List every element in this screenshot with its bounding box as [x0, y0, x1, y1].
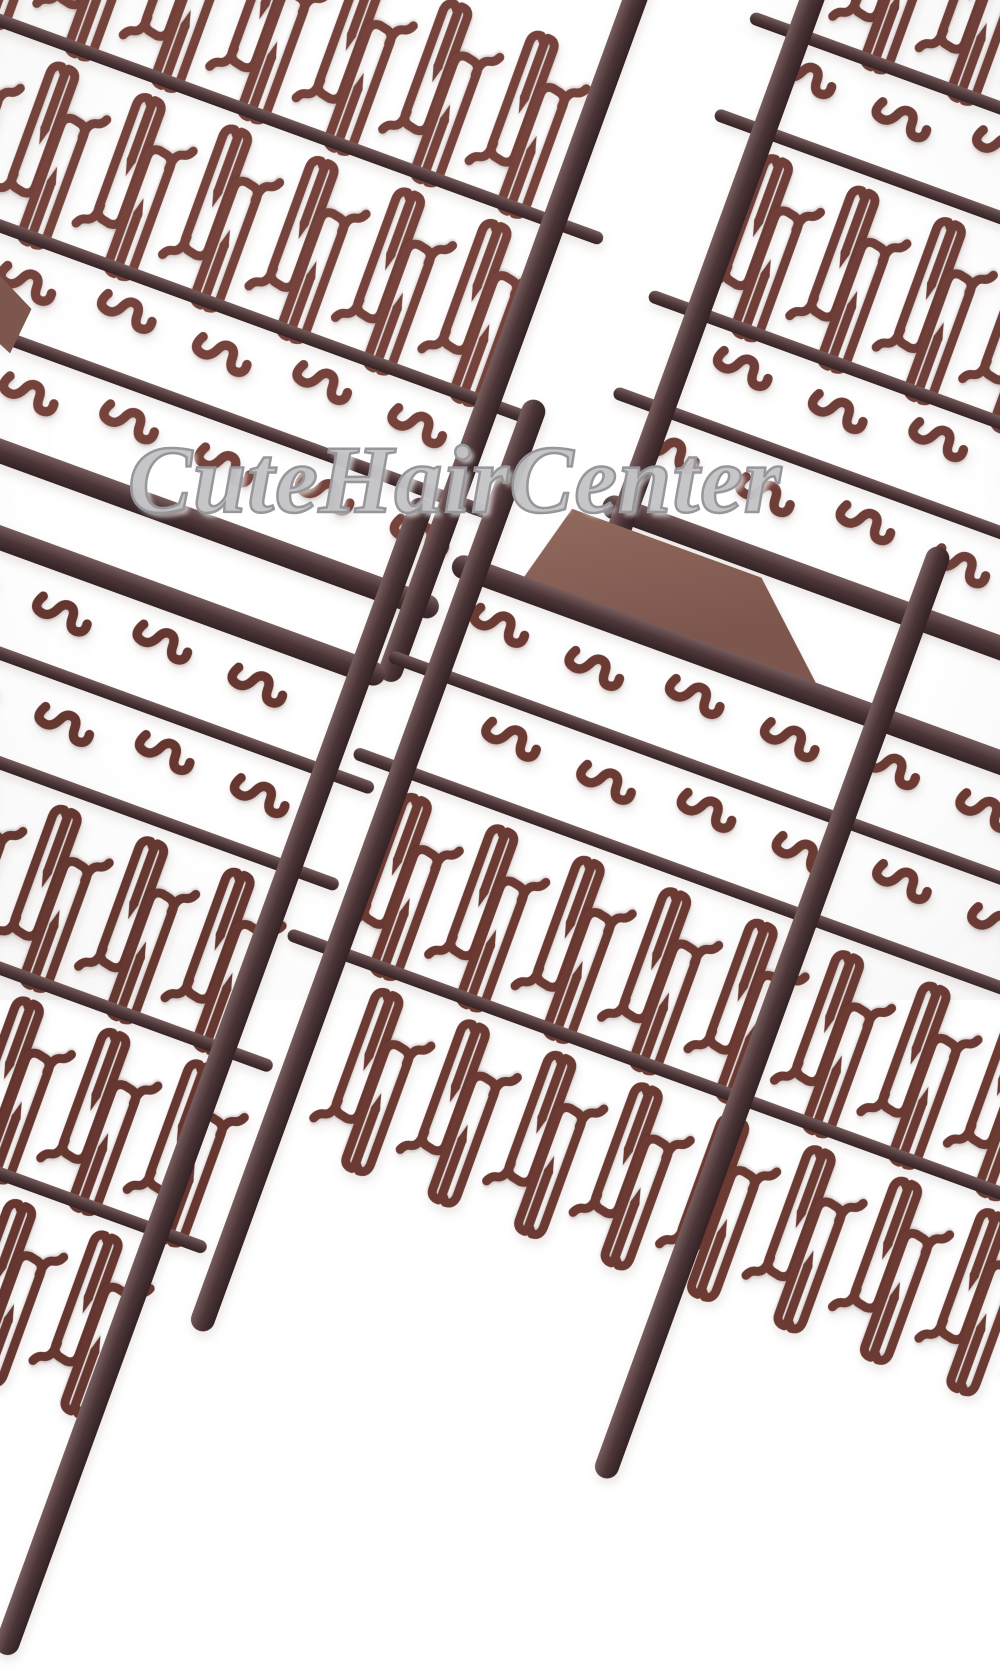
v-clip-piece — [751, 704, 829, 771]
v-clip-piece — [23, 579, 101, 646]
v-clip-piece — [221, 760, 299, 827]
watermark: CuteHairCenter — [128, 424, 782, 535]
v-clip-piece — [0, 359, 68, 426]
v-clip-piece — [863, 84, 941, 151]
v-clip-piece — [963, 113, 1000, 180]
v-clip-piece — [26, 689, 104, 756]
v-clip-piece — [995, 447, 1000, 514]
product-photo: CuteHairCenter — [0, 0, 1000, 1000]
v-clip-piece — [183, 319, 261, 386]
v-clip-piece — [556, 633, 634, 700]
v-clip-piece — [219, 650, 297, 717]
v-clip-piece — [799, 376, 877, 443]
v-clip-piece — [568, 747, 646, 814]
v-clip-piece — [958, 889, 1000, 956]
v-clip-piece — [947, 775, 1000, 842]
